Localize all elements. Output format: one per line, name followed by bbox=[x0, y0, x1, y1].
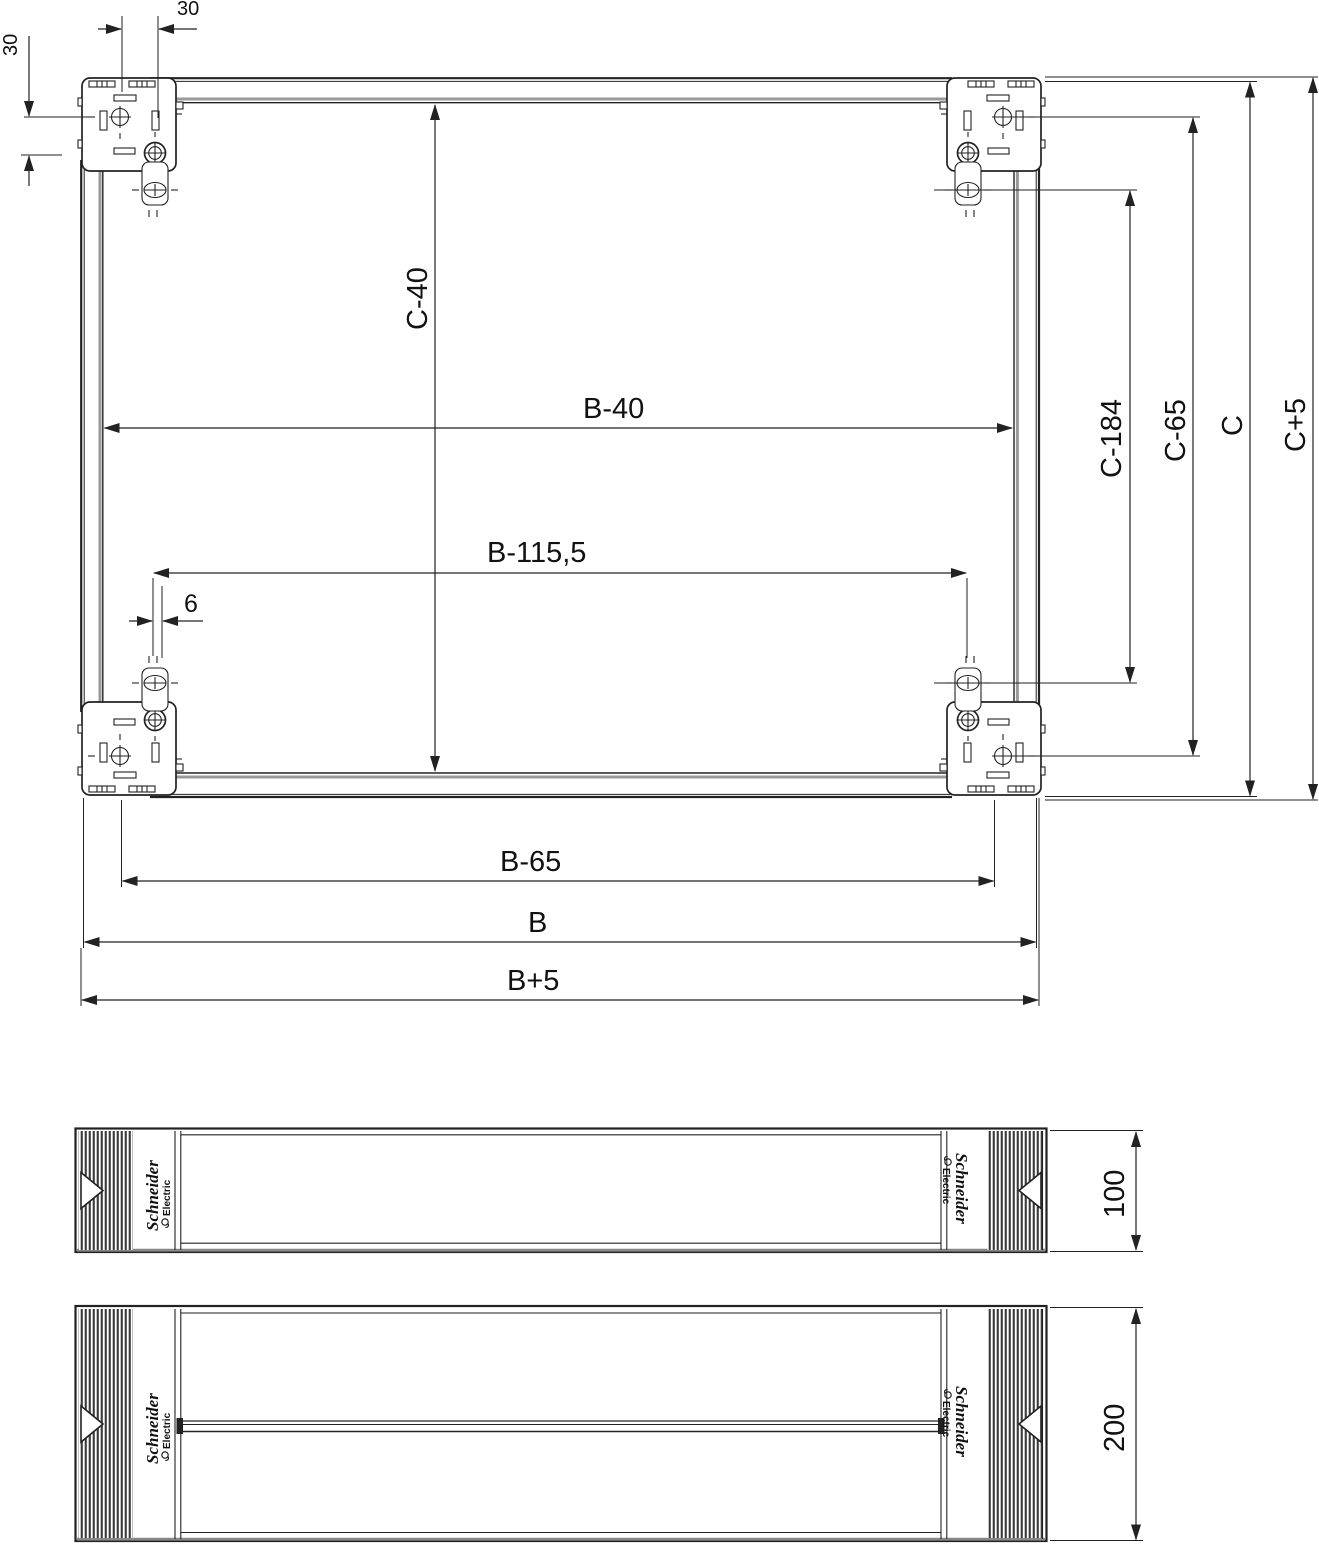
dim-screw-spacing-h: B-115,5 bbox=[153, 537, 967, 658]
corner-bracket-top-left bbox=[78, 78, 183, 217]
brand-sub-left: Electric bbox=[162, 1179, 173, 1216]
dim-inner-height-label: C-40 bbox=[402, 267, 434, 330]
dim-screw-spacing-h-label: B-115,5 bbox=[487, 537, 586, 569]
dim-top-offset-label: 30 bbox=[177, 0, 199, 20]
brand-name-right: Schneider bbox=[952, 1153, 971, 1224]
dim-width-overall-label: B+5 bbox=[507, 965, 559, 997]
dim-screw-offset-label: 6 bbox=[184, 590, 198, 618]
dim-screw-offset: 6 bbox=[129, 586, 203, 658]
corner-bracket-bottom-right bbox=[940, 656, 1045, 795]
dim-left-offset: 30 bbox=[0, 34, 94, 186]
frame-rails bbox=[81, 78, 1039, 797]
technical-drawing-page: 30 30 C-40 B-40 B-115,5 bbox=[0, 0, 1319, 1547]
brand-sub-left: Electric bbox=[162, 1412, 173, 1449]
dim-inner-width-label: B-40 bbox=[583, 393, 644, 425]
dim-screw-spacing-v-label: C-65 bbox=[1160, 399, 1192, 462]
dim-height: C bbox=[1045, 82, 1257, 797]
plan-view: 30 30 C-40 B-40 B-115,5 bbox=[0, 0, 1318, 1006]
dim-inner-height: C-40 bbox=[402, 105, 435, 771]
brand-sub-right: Electric bbox=[940, 1168, 951, 1205]
dim-tab-spacing-v: C-184 bbox=[934, 190, 1137, 683]
dim-panel-200: 200 bbox=[1050, 1308, 1143, 1541]
dim-panel-100-label: 100 bbox=[1099, 1170, 1131, 1218]
brand-name-left: Schneider bbox=[143, 1393, 162, 1464]
brand-name-right: Schneider bbox=[952, 1386, 971, 1457]
dim-width-overall: B+5 bbox=[81, 798, 1039, 1006]
dim-width-label: B bbox=[528, 907, 547, 939]
dim-bracket-spacing-label: B-65 bbox=[500, 846, 561, 878]
brand-sub-right: Electric bbox=[940, 1401, 951, 1438]
dim-tab-spacing-v-label: C-184 bbox=[1096, 399, 1128, 478]
brand-name-left: Schneider bbox=[143, 1160, 162, 1231]
corner-bracket-bottom-left bbox=[78, 656, 183, 795]
dim-left-offset-label: 30 bbox=[0, 34, 22, 56]
dim-panel-200-label: 200 bbox=[1099, 1404, 1131, 1452]
dim-height-overall-label: C+5 bbox=[1280, 398, 1312, 452]
dim-height-label: C bbox=[1217, 415, 1249, 436]
plinth-front-200: Schneider Electric Schneider Electric bbox=[76, 1306, 1047, 1541]
drawing-canvas: 30 30 C-40 B-40 B-115,5 bbox=[0, 0, 1319, 1547]
dim-bracket-spacing: B-65 bbox=[122, 800, 995, 887]
plinth-front-100: Schneider Electric Schneider Electric bbox=[76, 1129, 1047, 1253]
dim-panel-100: 100 bbox=[1050, 1131, 1143, 1252]
dim-inner-width: B-40 bbox=[105, 393, 1013, 428]
corner-bracket-top-right bbox=[940, 78, 1045, 217]
